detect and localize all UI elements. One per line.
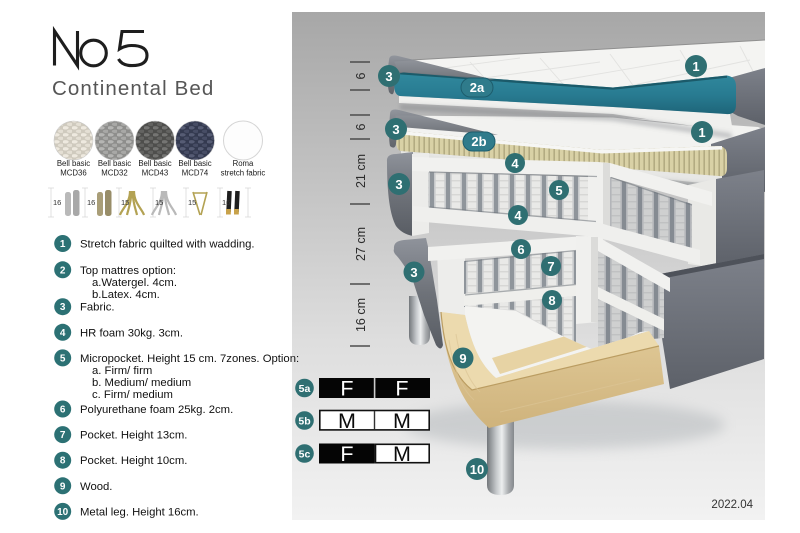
svg-text:HR foam 30kg. 3cm.: HR foam 30kg. 3cm. bbox=[80, 327, 183, 339]
svg-text:16 cm: 16 cm bbox=[354, 298, 368, 332]
svg-text:2a: 2a bbox=[470, 80, 485, 95]
svg-text:M: M bbox=[338, 409, 356, 433]
svg-text:15: 15 bbox=[155, 198, 163, 207]
svg-text:7: 7 bbox=[60, 430, 66, 441]
svg-text:8: 8 bbox=[548, 293, 555, 308]
svg-text:stretch fabric: stretch fabric bbox=[221, 169, 266, 178]
svg-text:9: 9 bbox=[459, 351, 466, 366]
svg-text:15: 15 bbox=[188, 198, 196, 207]
svg-text:Polyurethane foam 25kg. 2cm.: Polyurethane foam 25kg. 2cm. bbox=[80, 404, 233, 416]
svg-text:F: F bbox=[340, 442, 353, 466]
svg-text:M: M bbox=[393, 442, 411, 466]
svg-text:16: 16 bbox=[87, 198, 95, 207]
svg-text:3: 3 bbox=[395, 177, 402, 192]
svg-text:8: 8 bbox=[60, 456, 66, 467]
svg-text:27 cm: 27 cm bbox=[354, 227, 368, 261]
svg-text:Bell basic: Bell basic bbox=[178, 159, 211, 168]
svg-text:5c: 5c bbox=[299, 448, 311, 460]
svg-text:16: 16 bbox=[222, 198, 230, 207]
svg-text:F: F bbox=[340, 377, 353, 401]
svg-text:Bell basic: Bell basic bbox=[98, 159, 131, 168]
svg-text:Continental Bed: Continental Bed bbox=[52, 77, 214, 100]
svg-text:Pocket. Height 13cm.: Pocket. Height 13cm. bbox=[80, 430, 187, 442]
svg-text:Bell basic: Bell basic bbox=[138, 159, 171, 168]
svg-text:1: 1 bbox=[692, 59, 699, 74]
svg-text:2022.04: 2022.04 bbox=[711, 499, 753, 511]
svg-text:5a: 5a bbox=[299, 383, 311, 395]
svg-text:Stretch fabric quilted with wa: Stretch fabric quilted with wadding. bbox=[80, 239, 255, 251]
svg-text:1: 1 bbox=[60, 239, 66, 250]
svg-text:Fabric.: Fabric. bbox=[80, 302, 115, 314]
svg-text:4: 4 bbox=[514, 208, 522, 223]
svg-text:9: 9 bbox=[60, 481, 66, 492]
svg-text:Pocket. Height 10cm.: Pocket. Height 10cm. bbox=[80, 455, 187, 467]
svg-text:5: 5 bbox=[555, 183, 562, 198]
svg-text:Roma: Roma bbox=[233, 159, 254, 168]
svg-text:10: 10 bbox=[470, 462, 484, 477]
svg-text:MCD74: MCD74 bbox=[182, 169, 209, 178]
svg-text:Top mattres option:: Top mattres option: bbox=[80, 265, 176, 277]
svg-text:F: F bbox=[395, 377, 408, 401]
svg-text:MCD36: MCD36 bbox=[60, 169, 86, 178]
svg-text:MCD43: MCD43 bbox=[142, 169, 168, 178]
svg-text:a. Firm/ firm: a. Firm/ firm bbox=[92, 365, 152, 377]
svg-text:15: 15 bbox=[121, 198, 129, 207]
svg-text:6: 6 bbox=[354, 72, 368, 79]
svg-text:M: M bbox=[393, 409, 411, 433]
svg-text:a.Watergel. 4cm.: a.Watergel. 4cm. bbox=[92, 277, 177, 289]
svg-text:Wood.: Wood. bbox=[80, 481, 112, 493]
svg-text:6: 6 bbox=[354, 123, 368, 130]
svg-text:21 cm: 21 cm bbox=[354, 154, 368, 188]
svg-text:MCD32: MCD32 bbox=[101, 169, 127, 178]
svg-text:2b: 2b bbox=[471, 134, 486, 149]
svg-text:6: 6 bbox=[517, 242, 524, 257]
svg-text:5: 5 bbox=[60, 353, 66, 364]
svg-text:16: 16 bbox=[53, 198, 61, 207]
svg-text:c. Firm/ medium: c. Firm/ medium bbox=[92, 389, 173, 401]
svg-text:3: 3 bbox=[410, 265, 417, 280]
svg-text:10: 10 bbox=[57, 507, 69, 518]
svg-text:4: 4 bbox=[60, 328, 66, 339]
svg-text:Metal leg. Height 16cm.: Metal leg. Height 16cm. bbox=[80, 506, 199, 518]
svg-text:5b: 5b bbox=[298, 415, 310, 427]
svg-text:Micropocket. Height 15 cm. 7zo: Micropocket. Height 15 cm. 7zones. Optio… bbox=[80, 353, 299, 365]
svg-text:3: 3 bbox=[60, 302, 66, 313]
svg-text:1: 1 bbox=[698, 125, 705, 140]
svg-text:3: 3 bbox=[392, 122, 399, 137]
svg-text:2: 2 bbox=[60, 265, 66, 276]
svg-text:Bell basic: Bell basic bbox=[57, 159, 90, 168]
svg-text:7: 7 bbox=[547, 259, 554, 274]
svg-text:3: 3 bbox=[385, 69, 392, 84]
svg-text:b.Latex. 4cm.: b.Latex. 4cm. bbox=[92, 289, 160, 301]
svg-text:4: 4 bbox=[511, 156, 519, 171]
svg-text:b. Medium/ medium: b. Medium/ medium bbox=[92, 377, 191, 389]
svg-text:6: 6 bbox=[60, 405, 66, 416]
